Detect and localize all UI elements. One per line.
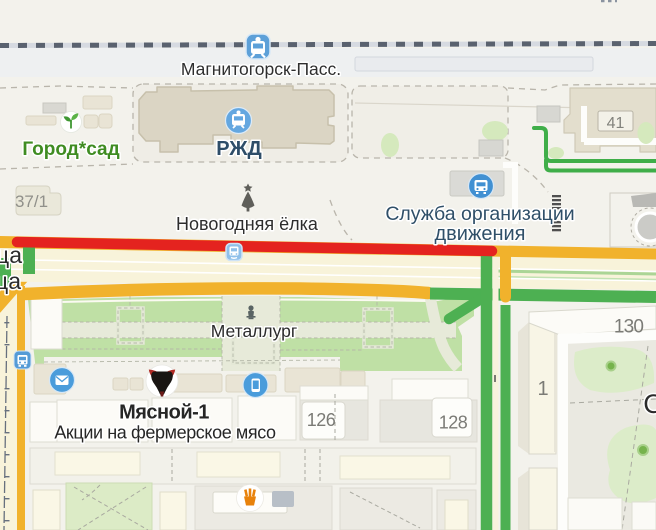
svg-text:Служба организации: Служба организации xyxy=(385,203,574,225)
svg-text:РЖД: РЖД xyxy=(216,138,261,160)
svg-text:Мясной-1: Мясной-1 xyxy=(119,402,209,424)
svg-text:С: С xyxy=(643,389,656,419)
svg-text:41: 41 xyxy=(607,115,625,132)
svg-text:128: 128 xyxy=(439,413,468,433)
svg-text:Новогодняя ёлка: Новогодняя ёлка xyxy=(176,214,319,234)
svg-text:Город*сад: Город*сад xyxy=(22,139,119,160)
svg-text:Акции на фермерское мясо: Акции на фермерское мясо xyxy=(54,423,276,443)
svg-text:ца: ца xyxy=(0,268,21,294)
svg-text:37/1: 37/1 xyxy=(15,192,48,211)
svg-text:126: 126 xyxy=(307,410,336,430)
svg-text:1: 1 xyxy=(537,378,548,400)
svg-text:Магнитогорск-Пасс.: Магнитогорск-Пасс. xyxy=(181,59,341,79)
svg-text:ца: ца xyxy=(0,242,22,268)
svg-text:130: 130 xyxy=(614,317,644,338)
svg-text:Металлург: Металлург xyxy=(211,321,298,341)
svg-text:движения: движения xyxy=(434,223,525,245)
